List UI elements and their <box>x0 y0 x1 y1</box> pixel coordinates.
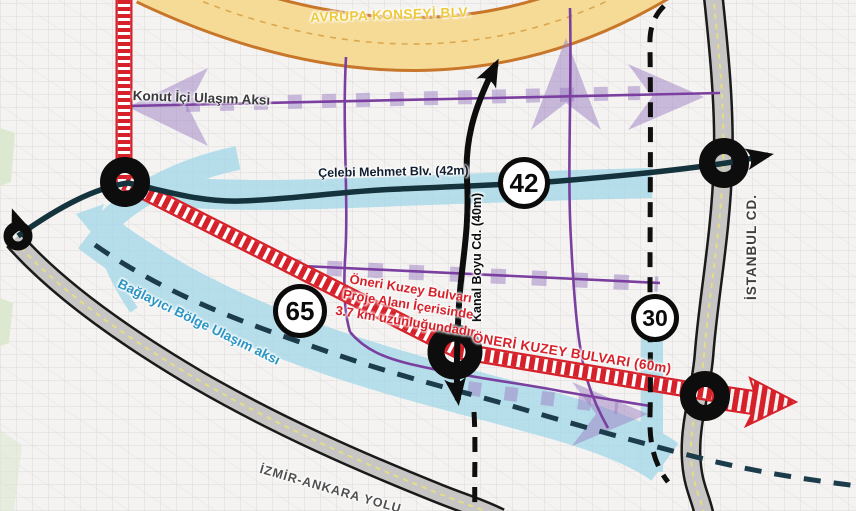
badge-65: 65 <box>273 284 327 338</box>
label-istanbul-cd: İSTANBUL CD. <box>744 194 759 300</box>
urban-transport-plan-map: AVRUPA KONSEYİ BLV. Konut İçi Ulaşım Aks… <box>0 0 856 511</box>
map-canvas <box>0 0 856 511</box>
istanbul-road <box>691 0 723 511</box>
badge-30: 30 <box>631 294 679 342</box>
badge-42: 42 <box>498 157 550 209</box>
green-areas <box>0 128 22 511</box>
label-celebi-mehmet-blv: Çelebi Mehmet Blv. (42m) <box>318 163 469 180</box>
